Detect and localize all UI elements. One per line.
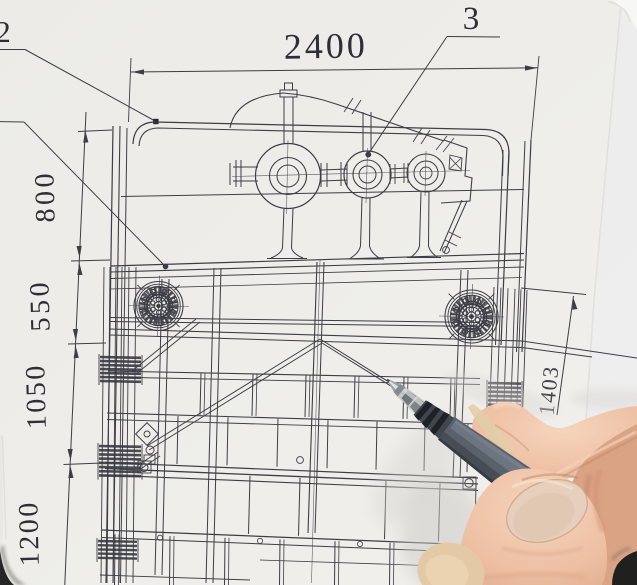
svg-text:1050: 1050 (20, 363, 53, 430)
svg-text:2400: 2400 (283, 25, 368, 66)
svg-text:3: 3 (463, 1, 480, 37)
svg-text:2: 2 (0, 14, 11, 49)
svg-text:1200: 1200 (13, 500, 46, 567)
svg-text:550: 550 (24, 279, 56, 332)
svg-text:800: 800 (29, 170, 61, 223)
